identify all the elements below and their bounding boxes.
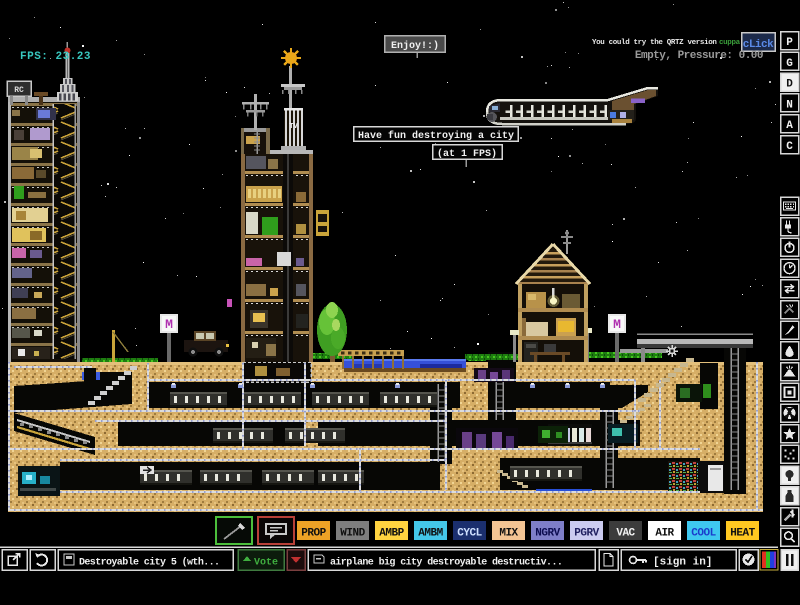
- svg-text:Enjoy!:): Enjoy!:): [391, 40, 439, 52]
- svg-text:WIND: WIND: [340, 528, 365, 540]
- svg-text:VAC: VAC: [616, 528, 635, 540]
- svg-text:AMBM: AMBM: [418, 528, 443, 540]
- svg-text:Vote: Vote: [254, 558, 278, 569]
- svg-text:AMBP: AMBP: [379, 528, 404, 540]
- svg-text:AIR: AIR: [655, 528, 674, 540]
- svg-text:HEAT: HEAT: [730, 528, 755, 540]
- svg-text:N: N: [786, 99, 793, 111]
- svg-text:Empty, Pressure: 0.00: Empty, Pressure: 0.00: [635, 50, 763, 62]
- svg-text:NGRV: NGRV: [535, 528, 560, 540]
- svg-text:(at 1 FPS): (at 1 FPS): [437, 148, 497, 160]
- svg-text:[sign in]: [sign in]: [653, 557, 712, 569]
- svg-text:P: P: [786, 37, 793, 49]
- svg-text:RC: RC: [14, 86, 24, 95]
- svg-text:M: M: [613, 317, 621, 332]
- svg-text:PGRV: PGRV: [574, 528, 599, 540]
- svg-text:COOL: COOL: [691, 528, 716, 540]
- svg-text:MIX: MIX: [499, 528, 518, 540]
- svg-text:C: C: [786, 141, 793, 153]
- svg-text:FPS: 23.23: FPS: 23.23: [20, 51, 91, 63]
- svg-text:G: G: [786, 58, 793, 70]
- svg-text:CYCL: CYCL: [457, 528, 482, 540]
- svg-text:You could try the QRTZ version: You could try the QRTZ version: [592, 39, 717, 47]
- svg-text:cuppa: cuppa: [719, 39, 741, 47]
- svg-text:Destroyable city 5 (wth...: Destroyable city 5 (wth...: [79, 557, 219, 569]
- svg-text:M: M: [165, 317, 173, 332]
- svg-text:A: A: [786, 120, 793, 132]
- svg-text:Have fun destroying a city: Have fun destroying a city: [358, 130, 514, 142]
- svg-text:PROP: PROP: [301, 528, 326, 540]
- svg-text:TV: TV: [289, 123, 298, 131]
- svg-text:D: D: [786, 79, 793, 91]
- svg-text:airplane big city destroyable: airplane big city destroyable destructiv…: [330, 557, 562, 569]
